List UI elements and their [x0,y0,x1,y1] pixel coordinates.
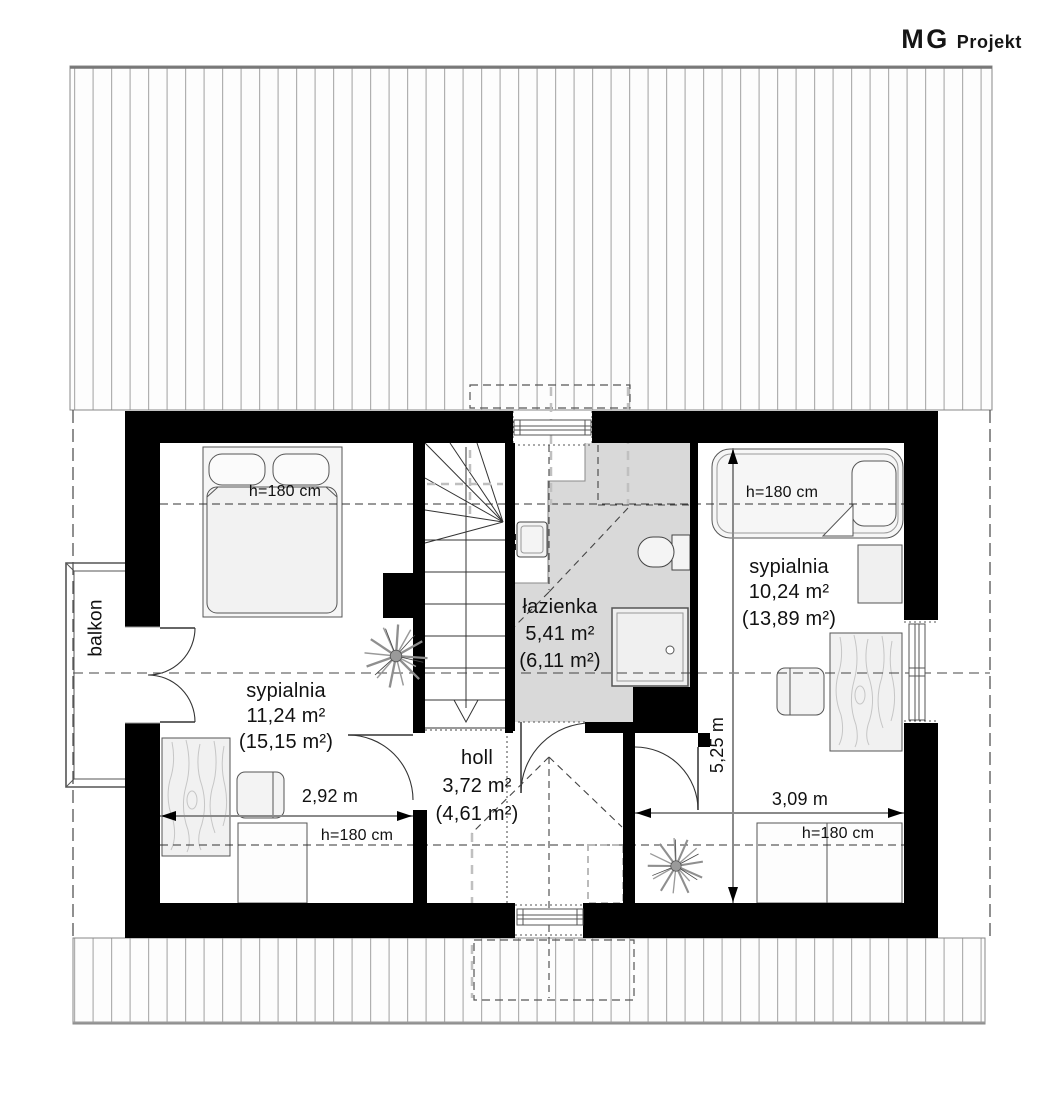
dimension-label-depth: 5,25 m [708,717,726,773]
toilet-bowl [638,537,674,567]
pillow [273,454,329,485]
room-label-bedroom-right: sypialnia [749,557,829,577]
bedroom-right-door [635,747,698,810]
pillow [852,461,896,526]
floor-plan-drawing [0,0,1050,1100]
gross-area-label-bedroom-right: (13,89 m²) [742,609,836,629]
ceiling-height-label-knee-left: h=180 cm [321,828,393,844]
dresser [238,823,307,903]
window-bottom [517,909,583,925]
toilet-cistern [672,535,690,570]
balcony-door [148,628,195,722]
shower [612,608,688,686]
room-label-balcony: balkon [87,599,106,656]
bedroom-left-furniture [162,447,342,903]
roof-plane-top [70,66,992,410]
brand-logo: MG Projekt [901,24,1022,55]
dimension-label-right-width: 3,09 m [772,790,828,808]
window-top [514,420,591,435]
gross-area-label-bedroom-left: (15,15 m²) [239,732,333,752]
room-label-bedroom-left: sypialnia [246,681,326,701]
duct-projection [588,845,623,903]
wardrobe [858,545,902,603]
chair [777,668,824,715]
area-label-bedroom-left: 11,24 m² [246,706,325,726]
brand-logo-main: MG [901,24,950,55]
desk [162,738,230,856]
room-label-bathroom: łazienka [523,597,598,617]
area-label-bathroom: 5,41 m² [525,624,594,644]
ceiling-height-label-bed-left: h=180 cm [249,484,321,500]
bathroom-door [521,722,591,793]
area-label-bedroom-right: 10,24 m² [749,582,830,602]
gross-area-label-hall: (4,61 m²) [436,804,519,824]
ceiling-height-label-knee-right: h=180 cm [802,826,874,842]
ceiling-height-label-bed-right: h=180 cm [746,485,818,501]
area-label-hall: 3,72 m² [442,776,511,796]
chair [237,772,284,818]
brand-logo-sub: Projekt [957,32,1022,53]
pillow [209,454,265,485]
dimension-label-left-width: 2,92 m [302,787,358,805]
gross-area-label-bathroom: (6,11 m²) [519,651,600,671]
plant-icon [639,829,712,902]
roof-plane-bottom [73,938,985,1024]
room-label-hall: holl [461,748,493,768]
window-right [909,624,925,720]
floor-plan-page: MG Projekt sypialnia 11,24 m² (15,15 m²)… [0,0,1050,1100]
